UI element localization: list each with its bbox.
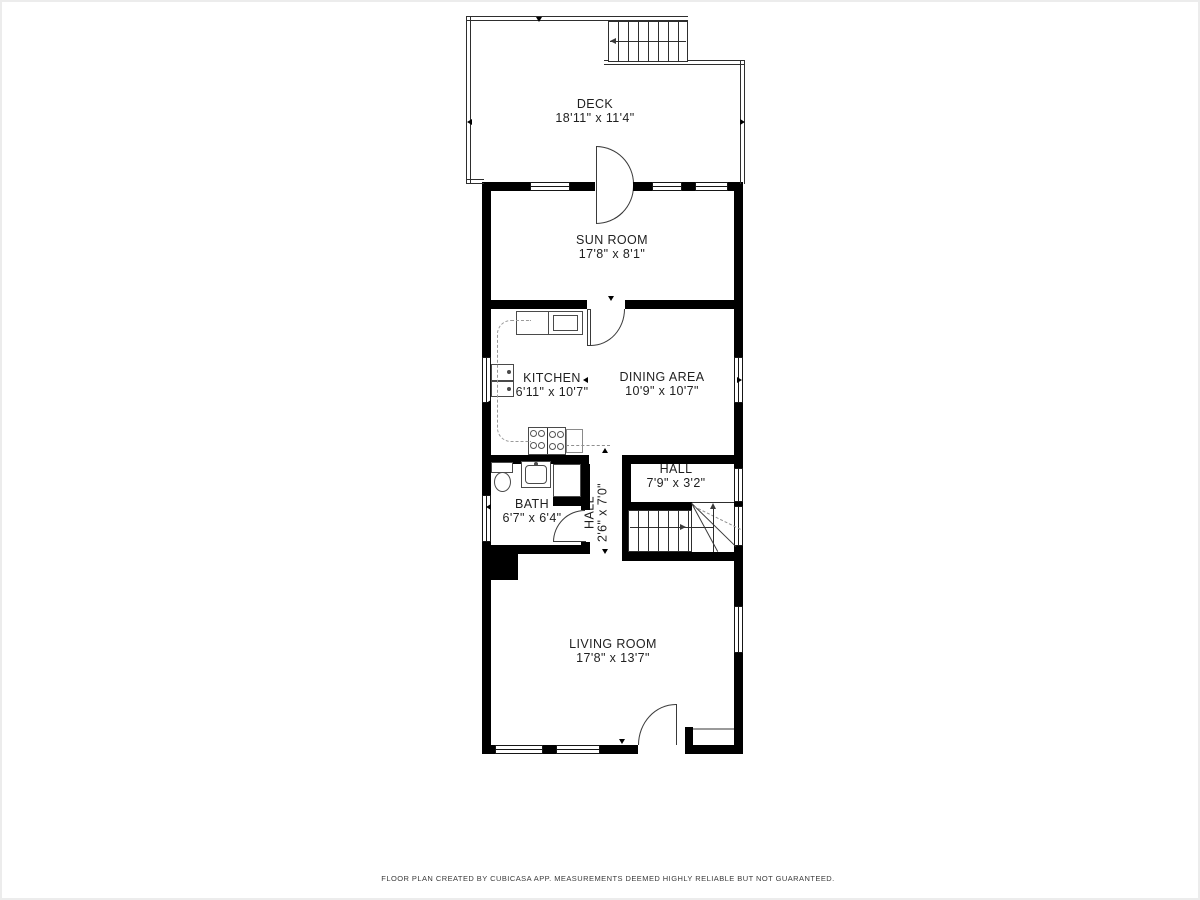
wall [625,300,743,309]
closet-wall-stub [553,497,584,506]
room-dims: 6'7" x 6'4" [502,511,561,525]
room-name: SUN ROOM [576,233,648,247]
wall [633,182,652,191]
measure-tick [602,549,608,554]
measure-tick [740,119,745,125]
wall [734,561,743,606]
wall [570,182,595,191]
room-name: DECK [555,97,634,111]
stair-tread [638,510,639,552]
stove-burner [538,442,545,449]
room-label-dining-area: DINING AREA 10'9" x 10'7" [620,370,705,398]
measure-tick [737,242,742,248]
stair-tread [688,510,689,552]
room-name: LIVING ROOM [569,637,657,651]
room-dims: 17'8" x 13'7" [569,651,657,665]
wall [685,745,743,754]
wall [482,182,530,191]
measure-tick [608,296,614,301]
measure-tick [486,504,491,510]
kitchen-counter-side [566,429,583,453]
stair-tread [648,510,649,552]
room-dims: 2'6" x 7'0" [597,465,610,561]
stair-tread [668,510,669,552]
room-label-deck: DECK 18'11" x 11'4" [555,97,634,125]
wall [682,182,695,191]
floor-plan-canvas: DECK 18'11" x 11'4" SUN ROOM 17'8" x 8'1… [0,0,1200,900]
wall [734,309,743,357]
stair-arrow-up [710,503,716,509]
stove-burner [530,442,537,449]
kitchen-sink [553,315,578,331]
window [734,606,743,653]
window [652,182,682,191]
room-name: HALL [646,462,705,476]
wall [482,309,491,357]
measure-tick [737,652,742,658]
toilet-bowl [494,472,511,492]
deck-double-door [596,146,634,224]
measure-tick [467,119,472,125]
wall [734,653,743,745]
wall [482,745,495,754]
window [734,468,743,502]
upper-cabinet-dashed [566,445,610,446]
bath-sink-basin [525,465,547,484]
stair-tread [678,510,679,552]
entry-door-leaf [676,704,677,745]
measure-tick [583,377,588,383]
wall [622,455,743,464]
wall [482,545,589,554]
measure-tick [737,377,742,383]
stair-tread [658,510,659,552]
window [530,182,570,191]
room-label-hall-upper: HALL 7'9" x 3'2" [646,462,705,490]
sunroom-dining-door-arc [591,309,625,346]
stair-arrow-stem [630,527,713,528]
window [482,357,491,403]
stove-burner [549,443,556,450]
measure-tick [536,17,542,22]
measure-tick [619,739,625,744]
wall [600,745,638,754]
window [556,745,600,754]
stair-arrow-right [680,524,686,530]
stove-burner [549,431,556,438]
wall [734,403,743,455]
room-name: DINING AREA [620,370,705,384]
window [695,182,728,191]
measure-tick [486,242,491,248]
wall [482,403,491,455]
porch-edge [693,728,734,730]
stair-rail [610,41,686,42]
room-dims: 7'9" x 3'2" [646,476,705,490]
stair-arrow-left [610,38,616,44]
wall [622,552,743,561]
measure-tick [486,400,491,406]
room-label-sun-room: SUN ROOM 17'8" x 8'1" [576,233,648,261]
measure-tick [602,448,608,453]
room-dims: 18'11" x 11'4" [555,111,634,125]
room-dims: 10'9" x 10'7" [620,384,705,398]
window [482,495,491,542]
wall [543,745,556,754]
stove-burner [557,443,564,450]
measure-tick [486,650,491,656]
faucet-dot [534,462,538,466]
entry-door-arc [638,704,676,745]
upper-cabinet-dashed [497,320,531,442]
wall [482,464,491,495]
room-dims: 17'8" x 8'1" [576,247,648,261]
porch-wall-stub [685,727,693,745]
stove-burner [530,430,537,437]
deck-rail [466,16,471,184]
window [495,745,543,754]
stove-burner [538,430,545,437]
room-label-living-room: LIVING ROOM 17'8" x 13'7" [569,637,657,665]
stove-divider [547,428,548,454]
stove-burner [557,431,564,438]
bath-closet [553,464,581,497]
wall [628,502,692,510]
stair-arrow-stem [713,509,714,527]
wall [482,300,587,309]
footer-disclaimer: FLOOR PLAN CREATED BY CUBICASA APP. MEAS… [381,874,834,883]
